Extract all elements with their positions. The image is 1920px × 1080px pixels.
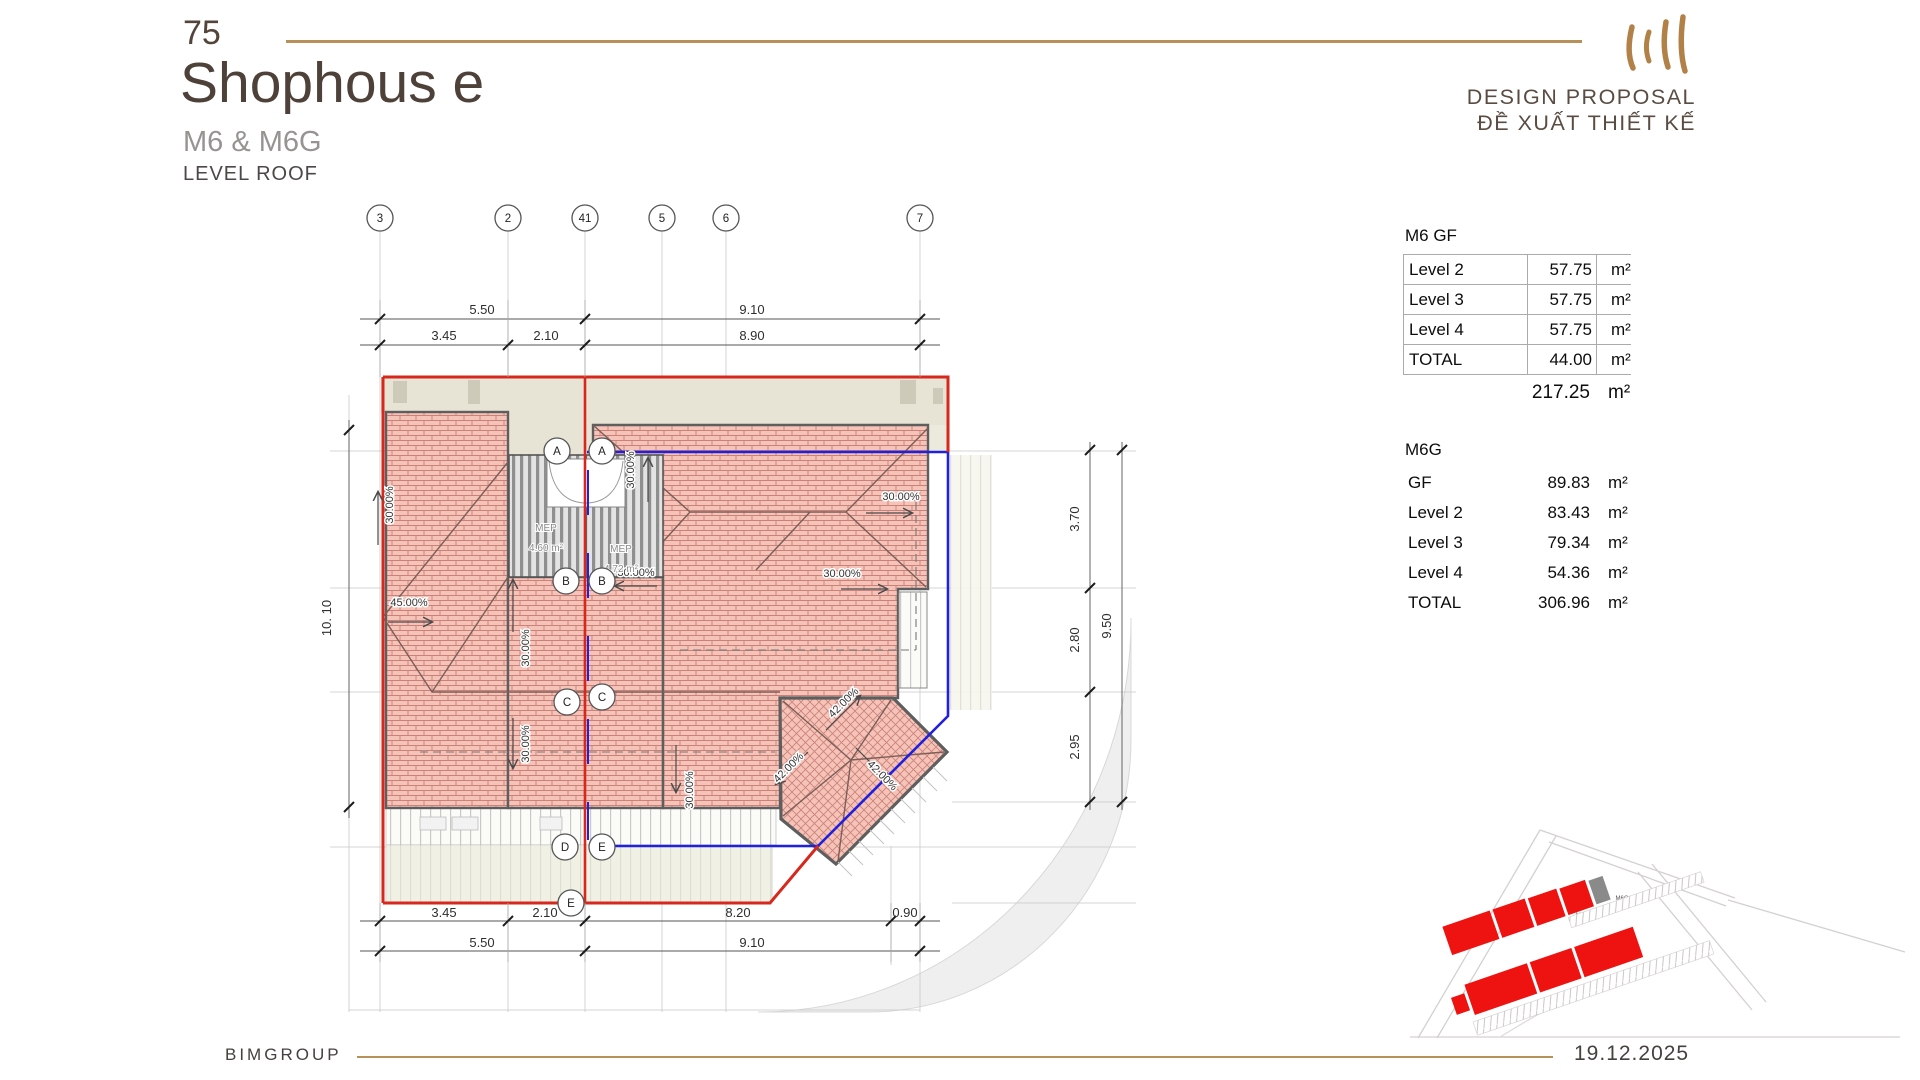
grid-bubble-label: 7: [917, 213, 923, 225]
grand-total-value: 217.25: [1526, 382, 1594, 404]
grid-bubble-label: 3: [377, 213, 383, 225]
area-row-label: GF: [1403, 473, 1526, 493]
footer-rule: [357, 1056, 1553, 1058]
area-row-label: TOTAL: [1404, 350, 1527, 370]
slope-label: 45.00%: [390, 597, 428, 609]
dimension-label: 2.95: [1067, 734, 1082, 759]
area-table-m6-rows: Level 257.75m²Level 357.75m²Level 457.75…: [1403, 254, 1631, 375]
dimension-label: 2.10: [532, 905, 557, 920]
area-table-m6-title: M6 GF: [1405, 226, 1631, 248]
grid-bubble-label: B: [562, 576, 570, 588]
dimension-label: 8.20: [725, 905, 750, 920]
area-row-value: 57.75: [1527, 255, 1597, 284]
area-row-label: Level 3: [1404, 290, 1527, 310]
area-row-value: 79.34: [1526, 533, 1594, 553]
area-row-value: 83.43: [1526, 503, 1594, 523]
area-row-unit: m²: [1608, 473, 1628, 493]
proposal-heading: DESIGN PROPOSAL ĐỀ XUẤT THIẾT KẾ: [1467, 84, 1696, 136]
grid-bubble-label: A: [553, 446, 561, 458]
area-row-label: Level 4: [1404, 320, 1527, 340]
area-row-unit: m²: [1611, 320, 1631, 340]
area-row-value: 89.83: [1526, 473, 1594, 493]
dimension-label: 9.50: [1099, 613, 1114, 638]
dimension-label: 3.70: [1067, 506, 1082, 531]
slope-label: 30.00%: [384, 486, 396, 524]
mep-label: MEP: [535, 523, 557, 534]
grid-bubble-label: B: [598, 576, 606, 588]
grid-bubble-label: E: [567, 898, 575, 910]
area-row-unit: m²: [1608, 593, 1628, 613]
grid-bubble-label: A: [598, 446, 606, 458]
area-row-unit: m²: [1608, 533, 1628, 553]
roof-surfaces: [386, 412, 947, 864]
dimension-label: 0.90: [892, 905, 917, 920]
dimension-label: 2.80: [1067, 627, 1082, 652]
grid-bubble-label: 2: [505, 213, 511, 225]
mep-label: MEP: [610, 544, 632, 555]
proposal-line-vi: ĐỀ XUẤT THIẾT KẾ: [1467, 110, 1696, 136]
area-table-m6g-title: M6G: [1405, 440, 1628, 462]
dimension-label: 5.50: [469, 302, 494, 317]
grid-bubble-label: 41: [579, 213, 592, 225]
grid-bubble-label: D: [561, 842, 569, 854]
page-number: 75: [183, 14, 221, 53]
area-table-m6: M6 GF Level 257.75m²Level 357.75m²Level …: [1403, 226, 1631, 408]
slope-label: 30.00%: [882, 491, 920, 503]
area-row: GF89.83m²: [1403, 468, 1628, 498]
area-table-m6g: M6G GF89.83m²Level 283.43m²Level 379.34m…: [1403, 440, 1628, 618]
dimension-label: 9.10: [739, 935, 764, 950]
area-row-value: 57.75: [1527, 315, 1597, 344]
area-row-value: 306.96: [1526, 593, 1594, 613]
area-row-value: 57.75: [1527, 285, 1597, 314]
dimension-label: 3.45: [431, 905, 456, 920]
area-row: TOTAL44.00m²: [1403, 345, 1631, 375]
area-row: Level 379.34m²: [1403, 528, 1628, 558]
area-row: Level 457.75m²: [1403, 315, 1631, 345]
roof-left-unit: [386, 412, 508, 808]
area-row-value: 54.36: [1526, 563, 1594, 583]
slope-label: 30.00%: [684, 771, 696, 809]
level-label: LEVEL ROOF: [183, 163, 318, 186]
grid-bubble-label: C: [598, 692, 606, 704]
area-row-unit: m²: [1611, 260, 1631, 280]
slope-label: 30.00%: [625, 451, 637, 489]
brand-logo-icon: [1629, 17, 1685, 71]
dimension-label: 2.10: [533, 328, 558, 343]
site-key-map: [1410, 830, 1905, 1039]
proposal-line-en: DESIGN PROPOSAL: [1467, 84, 1696, 110]
area-row-unit: m²: [1611, 350, 1631, 370]
area-row-label: Level 2: [1404, 260, 1527, 280]
mep-label: 4.60 m²: [529, 543, 564, 554]
area-row: Level 283.43m²: [1403, 498, 1628, 528]
area-row-unit: m²: [1608, 563, 1628, 583]
area-row: Level 257.75m²: [1403, 255, 1631, 285]
area-row-label: TOTAL: [1403, 593, 1526, 613]
dimension-label: 3.45: [431, 328, 456, 343]
area-row: TOTAL306.96m²: [1403, 588, 1628, 618]
header-rule: [286, 40, 1582, 43]
slope-label: 30.00%: [520, 629, 532, 667]
grid-bubble-label: 6: [723, 213, 729, 225]
slope-label: 30.00%: [520, 725, 532, 763]
area-row-label: Level 3: [1403, 533, 1526, 553]
slope-label: 30.00%: [823, 568, 861, 580]
area-row-value: 44.00: [1527, 345, 1597, 374]
area-row-unit: m²: [1608, 503, 1628, 523]
dimension-label: 10. 10: [319, 600, 334, 636]
dimension-label: 5.50: [469, 935, 494, 950]
area-table-m6-grand-total: 217.25 m²: [1403, 378, 1631, 408]
area-row: Level 454.36m²: [1403, 558, 1628, 588]
dimension-label: 9.10: [739, 302, 764, 317]
grid-bubble-label: 5: [659, 213, 665, 225]
grid-bubble-label: E: [598, 842, 606, 854]
roof-edge-notch: [899, 592, 927, 688]
roof-corner-bay: [780, 698, 947, 864]
area-row: Level 357.75m²: [1403, 285, 1631, 315]
grid-bubble-label: C: [563, 697, 571, 709]
roof-plan-drawing: 5.509.103.452.108.903.452.108.200.905.50…: [0, 0, 1920, 1080]
area-row-label: Level 2: [1403, 503, 1526, 523]
area-table-m6g-rows: GF89.83m²Level 283.43m²Level 379.34m²Lev…: [1403, 468, 1628, 618]
block-subtitle: M6 & M6G: [183, 126, 322, 159]
area-row-label: Level 4: [1403, 563, 1526, 583]
page-title: Shophous e: [180, 50, 484, 116]
area-row-unit: m²: [1611, 290, 1631, 310]
grand-total-unit: m²: [1608, 382, 1630, 404]
slide-page: 5.509.103.452.108.903.452.108.200.905.50…: [0, 0, 1920, 1080]
company-name: BIMGROUP: [225, 1045, 342, 1065]
dimension-label: 8.90: [739, 328, 764, 343]
slide-date: 19.12.2025: [1574, 1042, 1689, 1066]
